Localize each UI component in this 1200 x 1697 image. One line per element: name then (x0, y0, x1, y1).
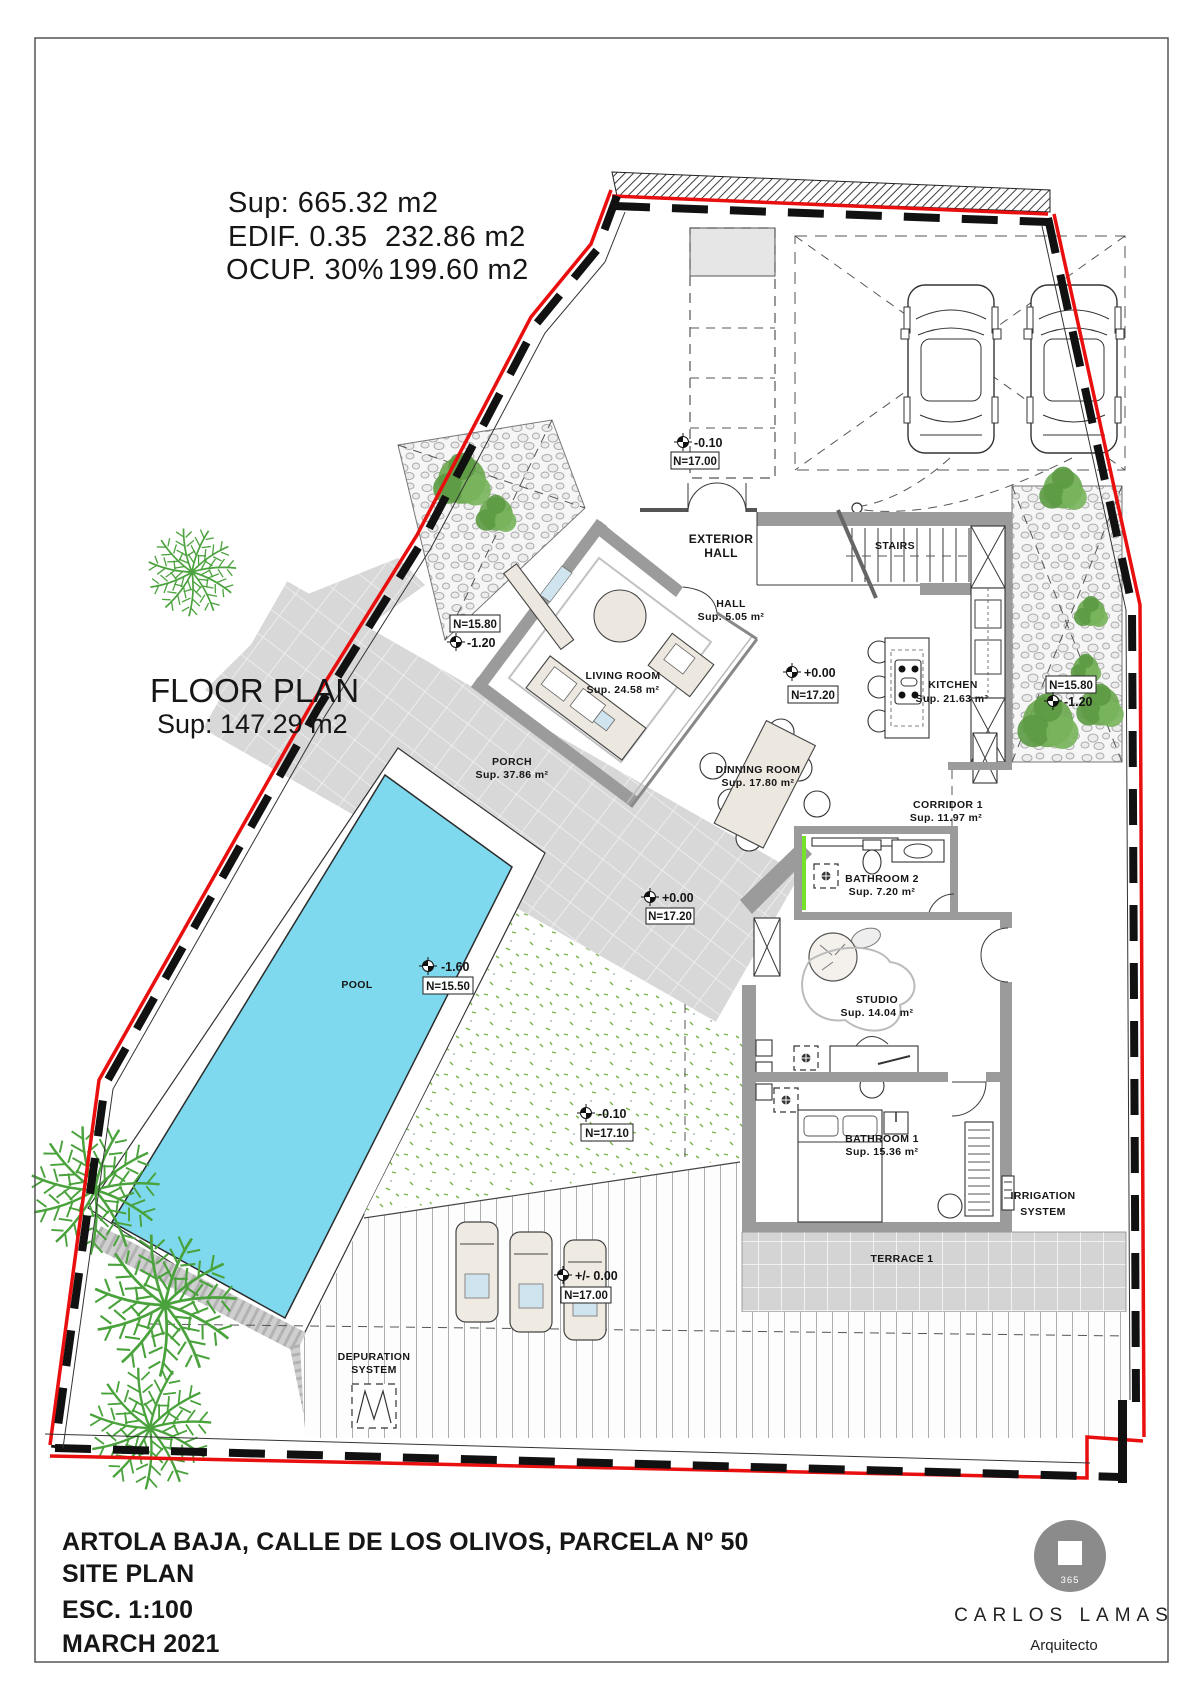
label-porch: PORCH (492, 756, 532, 768)
label-stairs: STAIRS (875, 540, 915, 552)
label-corridor-1-area: Sup. 11.97 m² (910, 812, 982, 824)
level-value: +0.00 (804, 666, 836, 680)
entry-point-node (852, 503, 862, 513)
depuration-system (352, 1384, 396, 1428)
label-irrigation-2: SYSTEM (1020, 1206, 1066, 1218)
label-hall: HALL (716, 598, 746, 610)
label-bathroom-2: BATHROOM 2 (845, 873, 919, 885)
floor-plan-label: FLOOR PLAN Sup: 147.29 m2 (150, 672, 359, 739)
floor-drain-icon (794, 1046, 818, 1070)
window (540, 566, 572, 602)
lounger (456, 1222, 498, 1322)
top-wall (757, 512, 1008, 526)
label-bathroom-1-area: Sup. 15.36 m² (846, 1146, 919, 1158)
stat-sup: Sup: 665.32 m2 (228, 187, 438, 219)
architect-title: Arquitecto (1030, 1637, 1098, 1654)
label-depuration: DEPURATION (338, 1351, 411, 1363)
label-living-room: LIVING ROOM (586, 670, 661, 682)
level-value: -1.20 (1064, 695, 1093, 709)
label-dining-room: DINNING ROOM (716, 764, 801, 776)
level-datum: N=15.80 (453, 619, 497, 631)
label-pool: POOL (341, 979, 373, 991)
label-bathroom-2-area: Sup. 7.20 m² (849, 886, 916, 898)
level-value: -0.10 (694, 436, 723, 450)
logo-number: 365 (1061, 1575, 1080, 1586)
terrace-1-paving (742, 1232, 1126, 1312)
architect-name: CARLOS LAMAS (954, 1605, 1174, 1626)
level-value: -0.10 (598, 1107, 627, 1121)
level-datum: N=15.50 (426, 981, 470, 993)
label-terrace-1: TERRACE 1 (870, 1253, 933, 1265)
logo-square (1058, 1541, 1082, 1565)
title-scale: ESC. 1:100 (62, 1596, 193, 1624)
level-value: -1.20 (467, 636, 496, 650)
label-living-room-area: Sup. 24.58 m² (587, 684, 660, 696)
level-marker-hall: +0.00 N=17.20 (783, 663, 838, 703)
tree-icon (1039, 467, 1087, 510)
level-value: +/- 0.00 (575, 1269, 618, 1283)
site-plan-page: -0.10 N=17.00 +0.00 N=17.20 +0.00 N=17.2… (0, 0, 1200, 1697)
stat-edif-label: EDIF. 0.35 (228, 221, 367, 253)
floor-drain-icon (774, 1088, 798, 1112)
title-address: ARTOLA BAJA, CALLE DE LOS OLIVOS, PARCEL… (62, 1528, 749, 1556)
stat-ocup-value: 199.60 m2 (388, 254, 529, 286)
lounger (510, 1232, 552, 1332)
label-kitchen: KITCHEN (928, 679, 977, 691)
floor-plan-area: Sup: 147.29 m2 (157, 709, 348, 739)
palm-icon (146, 527, 236, 618)
floor-plan-title: FLOOR PLAN (150, 672, 359, 709)
label-porch-area: Sup. 37.86 m² (476, 769, 549, 781)
level-datum: N=17.10 (585, 1128, 629, 1140)
title-date: MARCH 2021 (62, 1630, 220, 1658)
level-value: -1.60 (441, 960, 470, 974)
level-datum: N=17.00 (673, 456, 717, 468)
label-bathroom-1: BATHROOM 1 (845, 1133, 919, 1145)
car-icon (901, 285, 1001, 453)
level-datum: N=17.00 (564, 1290, 608, 1302)
label-corridor-1: CORRIDOR 1 (913, 799, 983, 811)
header-stats: Sup: 665.32 m2 EDIF. 0.35 232.86 m2 OCUP… (226, 187, 529, 286)
label-exterior-hall: EXTERIOR (689, 532, 754, 546)
label-exterior-hall-2: HALL (704, 546, 738, 560)
label-irrigation: IRRIGATION (1010, 1190, 1075, 1202)
level-marker-right-garden: N=15.80 -1.20 (1044, 676, 1096, 710)
level-datum: N=15.80 (1049, 680, 1093, 692)
architect-logo: 365 CARLOS LAMAS Arquitecto (954, 1520, 1174, 1654)
site-plan-drawing: -0.10 N=17.00 +0.00 N=17.20 +0.00 N=17.2… (0, 0, 1200, 1697)
level-marker-left-garden: N=15.80 -1.20 (447, 615, 500, 651)
title-plan-type: SITE PLAN (62, 1560, 194, 1588)
toilet-icon (863, 850, 881, 874)
level-datum: N=17.20 (648, 911, 692, 923)
stat-edif-value: 232.86 m2 (385, 221, 526, 253)
label-depuration-2: SYSTEM (351, 1364, 397, 1376)
level-datum: N=17.20 (791, 690, 835, 702)
label-kitchen-area: Sup. 21.63 m² (916, 693, 989, 705)
label-hall-area: Sup. 5.05 m² (698, 611, 765, 623)
entrance-door (688, 483, 746, 512)
title-block: ARTOLA BAJA, CALLE DE LOS OLIVOS, PARCEL… (62, 1528, 749, 1658)
stat-ocup-label: OCUP. 30% (226, 254, 384, 286)
label-dining-room-area: Sup. 17.80 m² (722, 777, 795, 789)
label-studio: STUDIO (856, 994, 898, 1006)
level-value: +0.00 (662, 891, 694, 905)
floor-drain-icon (814, 864, 838, 888)
window-strip (802, 836, 806, 910)
kitchen-island (868, 638, 929, 738)
kitchen-cabinets (971, 526, 1005, 783)
palm-icon (86, 1365, 211, 1491)
label-studio-area: Sup. 14.04 m² (841, 1007, 914, 1019)
level-marker-parking: -0.10 N=17.00 (671, 433, 723, 469)
ottoman (594, 590, 646, 642)
